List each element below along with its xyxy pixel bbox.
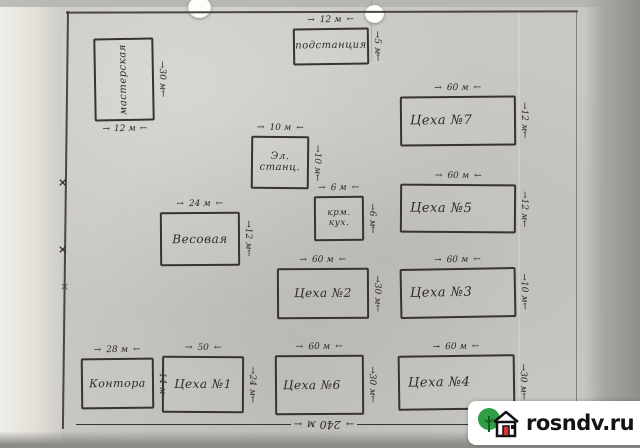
building-label: Цеха №5 <box>402 186 514 232</box>
boundary-x-mark: × <box>58 176 67 189</box>
dimension-right: 10 м <box>312 144 322 181</box>
dimension-top: 28 м <box>83 345 152 356</box>
building-label: Цеха №7 <box>402 98 514 145</box>
dimension-top: 60 м <box>402 171 514 182</box>
overall-width-label: 240 м <box>305 418 343 431</box>
dimension-top: 60 м <box>401 254 513 266</box>
dimension-top: 6 м <box>316 183 362 193</box>
dimension-top: 60 м <box>399 341 512 353</box>
scan-right-edge-shadow <box>584 0 640 448</box>
plan-border-right <box>576 12 577 422</box>
dimension-right: 30 м <box>518 363 529 400</box>
dimension-right: 5 м <box>372 30 382 61</box>
dimension-right: 6 м <box>367 203 377 234</box>
building-label: Цеха №3 <box>402 269 515 317</box>
building-masterskaya: мастерская 30 м 12 м <box>93 37 154 121</box>
building-tsekh-3: 60 м Цеха №3 10 м <box>400 267 517 319</box>
building-tsekh-7: 60 м Цеха №7 12 м <box>400 95 516 146</box>
dimension-top: 24 м <box>162 199 238 210</box>
dimension-top: 60 м <box>279 255 367 265</box>
building-kontora: 28 м Контора 14 м <box>81 358 155 410</box>
arrow-left-icon <box>346 419 354 430</box>
dimension-top: 50 <box>164 343 242 353</box>
dimension-top: 10 м <box>253 123 307 134</box>
rosndv-watermark: rosndv.ru <box>468 401 640 445</box>
dimension-right: 12 м <box>243 220 253 257</box>
dimension-right: 12 м <box>519 190 529 227</box>
punch-hole <box>365 5 384 23</box>
dimension-right: 10 м <box>519 273 530 310</box>
dimension-right: 24 м <box>247 366 257 403</box>
dimension-top: 60 м <box>277 342 362 353</box>
building-tsekh-1: 50 Цеха №1 24 м <box>162 356 244 413</box>
building-label: Весовая <box>162 214 238 265</box>
building-feed-kitchen: 6 м крм. кух. 6 м <box>314 196 364 241</box>
punch-hole <box>188 0 211 18</box>
building-tsekh-5: 60 м Цеха №5 12 м <box>400 184 516 234</box>
boundary-x-mark: × <box>60 280 69 293</box>
watermark-text: rosndv.ru <box>526 411 634 435</box>
building-label: Цеха №2 <box>279 270 367 317</box>
building-label: подстанция <box>295 29 367 63</box>
building-power-station: 10 м Эл. станц. 10 м <box>251 136 310 190</box>
arrow-right-icon <box>294 419 302 430</box>
building-label: Цеха №1 <box>164 358 242 411</box>
dimension-top: 12 м <box>295 15 367 26</box>
building-tsekh-6: 60 м Цеха №6 30 м <box>275 355 364 416</box>
dimension-right: 12 м <box>519 102 529 139</box>
dimension-right: 30 м <box>372 275 382 312</box>
dimension-right: 30 м <box>367 366 377 403</box>
building-tsekh-2: 60 м Цеха №2 30 м <box>277 268 369 319</box>
plan-border-left <box>62 11 69 429</box>
plan-border-top <box>66 10 578 13</box>
building-label: мастерская <box>95 40 152 120</box>
scanned-site-plan: × × × мастерская 30 м 12 м 12 м подстанц… <box>0 0 640 448</box>
dimension-top: 60 м <box>402 83 514 94</box>
scan-left-margin <box>0 0 62 448</box>
building-label: крм. кух. <box>316 198 362 239</box>
scan-top-edge <box>0 0 640 7</box>
building-label: Цеха №6 <box>277 357 362 414</box>
rosndv-logo-house-icon <box>476 406 520 440</box>
dimension-line <box>76 424 291 425</box>
building-weigh-house: 24 м Весовая 12 м <box>160 212 240 267</box>
building-label: Эл. станц. <box>253 138 308 188</box>
dimension-right: 30 м <box>157 60 168 97</box>
boundary-x-mark: × <box>58 243 67 256</box>
building-substation: 12 м подстанция 5 м <box>293 27 370 65</box>
building-label: Контора <box>83 360 152 408</box>
dimension-bottom: 12 м <box>97 124 153 135</box>
